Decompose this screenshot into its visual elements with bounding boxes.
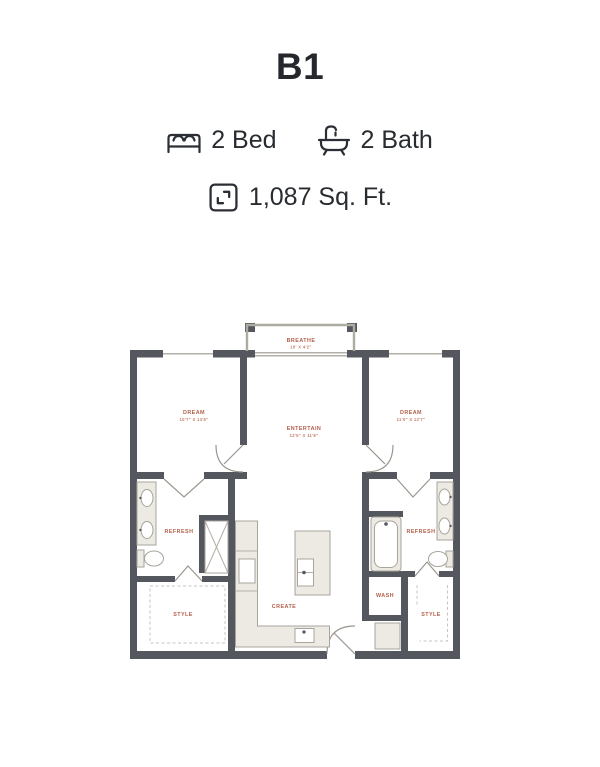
room-label-bedroom-right: DREAM xyxy=(400,410,422,416)
plan-sqft: 1,087 Sq. Ft. xyxy=(0,182,600,213)
room-label-bath-right: REFRESH xyxy=(407,529,436,535)
sqft-label: 1,087 Sq. Ft. xyxy=(249,183,392,212)
room-label-bedroom-left: DREAM xyxy=(183,410,205,416)
laundry-fixtures xyxy=(375,623,400,649)
room-label-closet-right: STYLE xyxy=(421,612,441,618)
bed-count-label: 2 Bed xyxy=(211,126,276,155)
room-dims-bedroom-right: 11'0" X 12'7" xyxy=(397,417,426,422)
kitchen-fixtures xyxy=(236,521,331,647)
bath-count-label: 2 Bath xyxy=(361,126,433,155)
area-icon xyxy=(208,182,239,213)
plan-title: B1 xyxy=(0,0,600,88)
floorplan-card: B1 2 Bed 2 Bath xyxy=(0,0,600,767)
room-label-closet-left: STYLE xyxy=(173,612,193,618)
room-label-living: ENTERTAIN xyxy=(287,426,322,432)
room-label-kitchen: CREATE xyxy=(272,604,296,610)
room-dims-bedroom-left: 10'7" X 13'6" xyxy=(180,417,209,422)
plan-features: 2 Bed 2 Bath xyxy=(0,124,600,156)
room-dims-balcony: 10' X 4'2" xyxy=(290,345,311,350)
bath-feature: 2 Bath xyxy=(317,124,433,156)
room-label-laundry: WASH xyxy=(376,593,394,599)
bath-icon xyxy=(317,124,351,156)
room-label-balcony: BREATHE xyxy=(287,338,316,344)
room-label-bath-left: REFRESH xyxy=(165,529,194,535)
bed-icon xyxy=(167,127,201,154)
bed-feature: 2 Bed xyxy=(167,126,276,155)
room-dims-living: 12'5" X 11'8" xyxy=(290,433,319,438)
floorplan-image: BREATHE 10' X 4'2" DREAM 10'7" X 13'6" E… xyxy=(127,315,473,667)
